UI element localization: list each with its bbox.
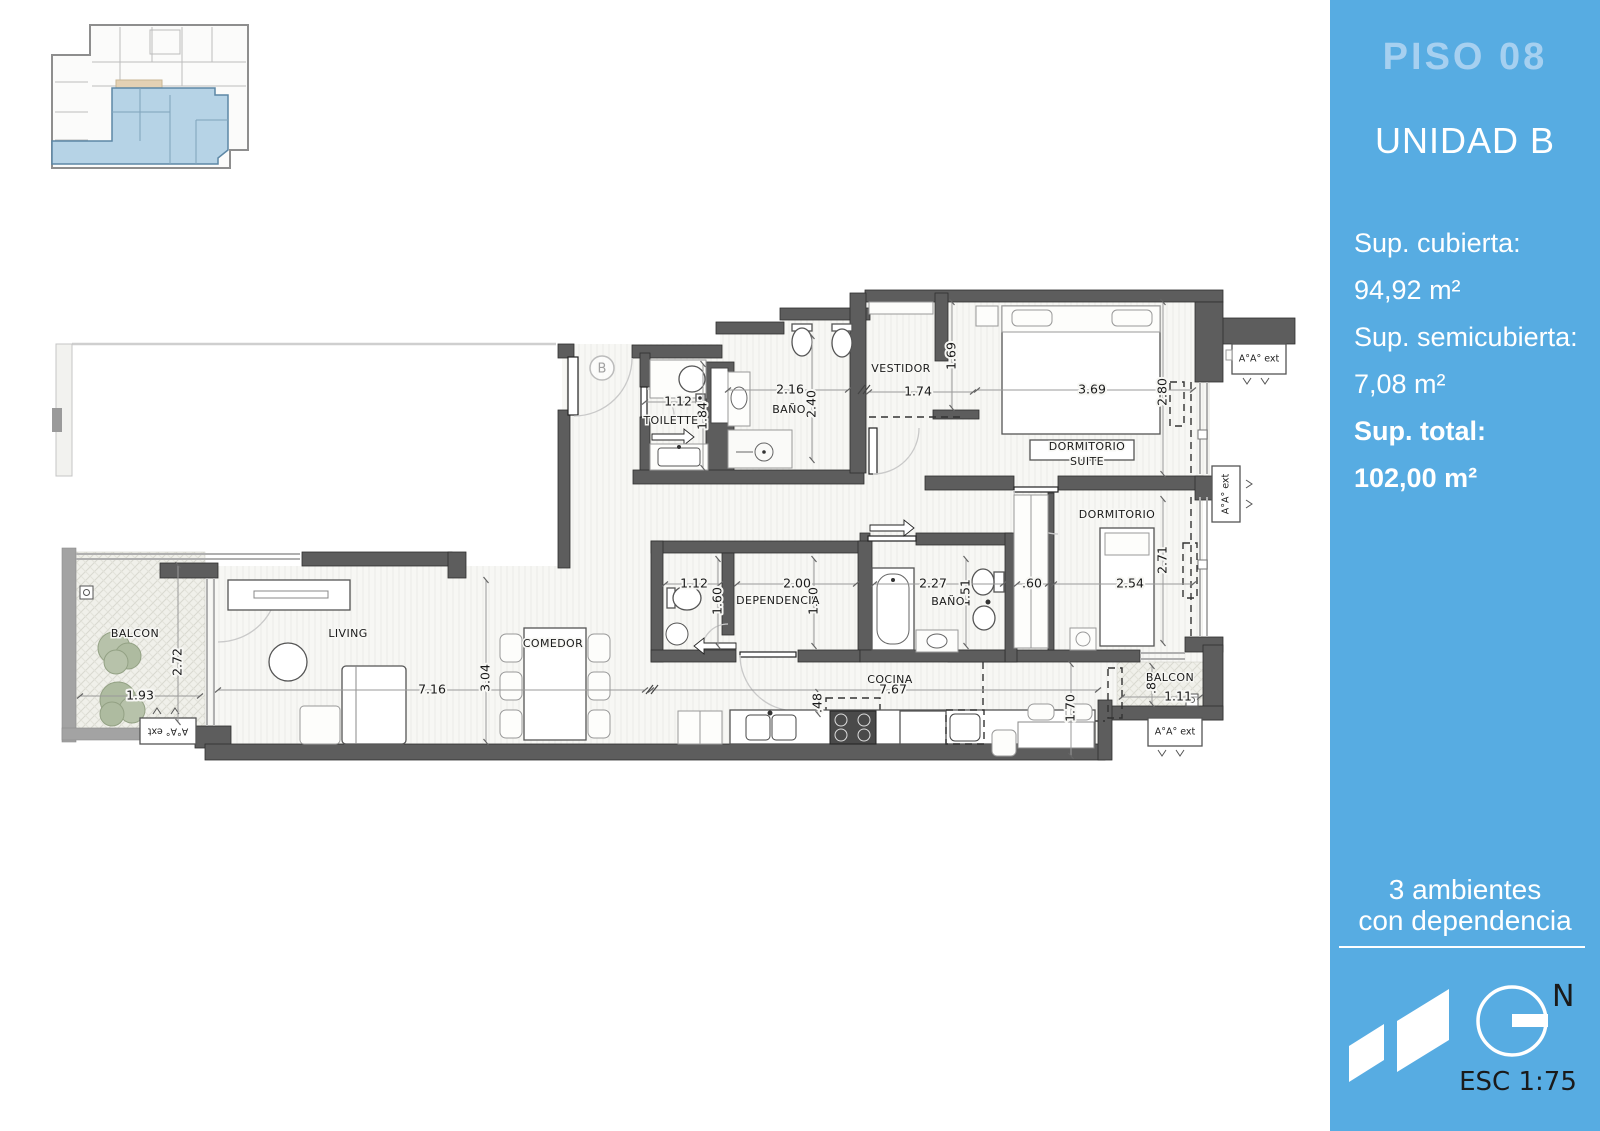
ac-unit: A°A° ext <box>1148 718 1202 756</box>
room-label-dormitorio-suite2: SUITE <box>1070 455 1104 468</box>
entry-door-leaf <box>568 357 578 415</box>
svg-text:2.72: 2.72 <box>170 648 185 676</box>
room-label-bano2: BAÑO <box>931 595 965 608</box>
stat-value: 94,92 m² <box>1354 267 1594 314</box>
room-label-balcon2: BALCON <box>1146 671 1194 684</box>
svg-text:1.93: 1.93 <box>126 688 154 703</box>
developer-logo <box>1349 989 1449 1082</box>
nightstand <box>1070 628 1096 650</box>
svg-text:B: B <box>598 362 607 377</box>
dinette-table <box>1018 722 1094 748</box>
armchair <box>300 706 340 744</box>
divider <box>1339 946 1585 948</box>
ac-unit: A°A° ext <box>1212 466 1252 522</box>
entrance-marker: B <box>590 356 614 380</box>
room-label-bano: BAÑO <box>772 403 806 416</box>
svg-text:1.12: 1.12 <box>664 394 692 409</box>
floorplan-drawing: A°A° ext A°A° ext A°A° ext A°A° ext <box>0 0 1330 1131</box>
room-label-balcon: BALCON <box>111 627 159 640</box>
room-label-dependencia: DEPENDENCIA <box>736 594 820 607</box>
svg-text:1.70: 1.70 <box>1063 694 1078 722</box>
typology: 3 ambientes con dependencia <box>1330 874 1600 936</box>
stat-label: Sup. cubierta: <box>1354 220 1594 267</box>
svg-text:3.69: 3.69 <box>1078 382 1106 397</box>
room-label-vestidor: VESTIDOR <box>871 362 930 375</box>
svg-text:2.71: 2.71 <box>1155 546 1170 574</box>
sink <box>746 715 770 740</box>
svg-text:3.04: 3.04 <box>478 664 493 692</box>
svg-text:1.12: 1.12 <box>680 576 708 591</box>
sink <box>950 714 980 741</box>
north-indicator: N <box>1478 979 1574 1055</box>
svg-text:2.16: 2.16 <box>776 382 804 397</box>
svg-text:1.69: 1.69 <box>944 342 959 370</box>
svg-text:1.11: 1.11 <box>1164 689 1192 704</box>
svg-text:1.60: 1.60 <box>710 587 725 615</box>
svg-text:A°A° ext: A°A° ext <box>147 726 188 737</box>
svg-text:.48: .48 <box>810 693 825 713</box>
svg-text:A°A° ext: A°A° ext <box>1221 473 1232 514</box>
drain <box>80 586 93 599</box>
room-label-dormitorio: DORMITORIO <box>1079 508 1155 521</box>
stat-value: 7,08 m² <box>1354 361 1594 408</box>
floorplan-sheet: A°A° ext A°A° ext A°A° ext A°A° ext <box>0 0 1600 1131</box>
floor-title: PISO 08 <box>1330 36 1600 79</box>
unit-title: UNIDAD B <box>1330 120 1600 162</box>
shower <box>728 430 792 468</box>
context-lines <box>52 344 556 476</box>
room-label-toilette: TOILETTE <box>642 414 698 427</box>
north-label: N <box>1552 979 1574 1014</box>
toilet <box>972 569 994 595</box>
scale-label: ESC 1:75 <box>1459 1067 1577 1097</box>
nightstand <box>976 306 998 326</box>
svg-text:7.16: 7.16 <box>418 682 446 697</box>
sink <box>772 715 796 740</box>
stat-label: Sup. semicubierta: <box>1354 314 1594 361</box>
toilet <box>679 366 705 392</box>
surface-stats: Sup. cubierta: 94,92 m² Sup. semicubiert… <box>1354 220 1594 502</box>
svg-text:2.27: 2.27 <box>919 576 947 591</box>
room-label-cocina: COCINA <box>867 673 912 686</box>
svg-text:1.74: 1.74 <box>904 384 932 399</box>
wardrobe <box>869 302 933 314</box>
brand-block: N ESC 1:75 <box>1330 958 1600 1131</box>
room-label-living: LIVING <box>328 627 367 640</box>
building-overview-map <box>52 25 248 168</box>
svg-text:A°A° ext: A°A° ext <box>1155 727 1196 738</box>
toilet <box>792 328 812 356</box>
svg-text:.60: .60 <box>1022 576 1042 591</box>
stat-value-total: 102,00 m² <box>1354 455 1594 502</box>
basin <box>666 623 688 645</box>
bidet <box>973 606 995 630</box>
sofa <box>342 666 406 744</box>
svg-text:2.54: 2.54 <box>1116 576 1144 591</box>
room-label-dormitorio-suite: DORMITORIO <box>1049 440 1125 453</box>
side-table <box>269 643 307 681</box>
tv-console <box>228 580 350 610</box>
info-panel: PISO 08 UNIDAD B Sup. cubierta: 94,92 m²… <box>1330 0 1600 1131</box>
svg-text:2.80: 2.80 <box>1155 378 1170 406</box>
ac-unit: A°A° ext <box>1226 344 1286 384</box>
bidet <box>832 329 852 357</box>
svg-text:A°A° ext: A°A° ext <box>1239 354 1280 365</box>
stat-label-total: Sup. total: <box>1354 408 1594 455</box>
room-label-comedor: COMEDOR <box>523 637 583 650</box>
